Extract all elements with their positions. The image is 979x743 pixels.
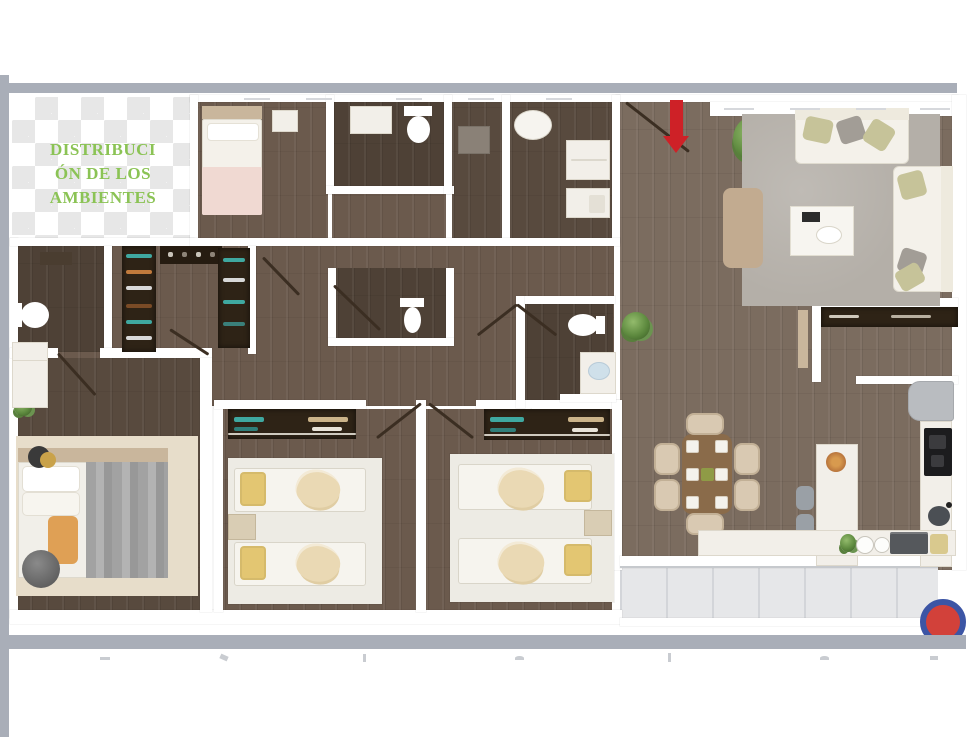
wall (10, 238, 194, 246)
wall (328, 338, 454, 346)
dining-chair (734, 443, 760, 475)
closet-shoe-shelf (160, 246, 222, 264)
kitchen-sink-round (928, 506, 950, 526)
entrance-arrow-shaft (670, 100, 683, 136)
bedroom1-closet (228, 409, 356, 439)
yellow-pillow (564, 544, 592, 576)
wall (525, 296, 615, 304)
faint-mark (546, 98, 572, 100)
nightstand (272, 110, 298, 132)
entrance-arrow-head (663, 136, 689, 153)
dining-chair (734, 479, 760, 511)
wall (952, 95, 966, 570)
nightstand (228, 514, 256, 540)
yellow-pillow (564, 470, 592, 502)
toilet-bowl (21, 302, 49, 328)
sink-basin (588, 362, 610, 380)
laundry-appliance (566, 140, 610, 180)
faint-mark (930, 656, 938, 660)
pink-blanket (202, 167, 262, 215)
faint-mark (668, 653, 671, 662)
bar-stool (796, 486, 814, 510)
island-plant (826, 452, 846, 472)
dining-chair (654, 443, 680, 475)
faint-mark (100, 657, 110, 660)
wall (326, 95, 334, 194)
wall (502, 95, 510, 243)
top-divider-bar (0, 83, 957, 93)
closet-rack-right (218, 248, 250, 348)
laundry-cabinet (566, 188, 610, 218)
coffee-table-decor (802, 212, 820, 222)
toilet-tank (404, 106, 432, 116)
faint-mark (724, 108, 754, 110)
screenshot-root: DISTRIBUCI ÓN DE LOS AMBIENTES (0, 0, 979, 743)
sink-basin (874, 537, 890, 553)
wall (190, 238, 620, 246)
table-lamp-gold (40, 452, 56, 468)
hall-wardrobe (821, 307, 958, 327)
shower-tray (458, 126, 490, 154)
closet-rack-left (122, 246, 156, 352)
balcony-door-track (620, 566, 938, 568)
title-line-2: ÓN DE LOS (28, 162, 178, 186)
floor-balcony (620, 568, 938, 618)
wall (560, 394, 616, 402)
faint-mark (468, 98, 494, 100)
bottom-divider-bar (0, 635, 966, 649)
dining-chair (686, 413, 724, 435)
fridge (908, 381, 954, 421)
faint-mark (219, 654, 228, 662)
wall-art (40, 252, 72, 265)
washing-machine (514, 110, 552, 140)
faint-mark (920, 108, 950, 110)
toilet-tank (400, 298, 424, 307)
faint-mark (820, 656, 829, 660)
wall (446, 268, 454, 346)
wall (214, 400, 223, 612)
bed-pillow (22, 466, 80, 492)
hall-mirror (798, 310, 808, 368)
stove (890, 532, 928, 554)
faint-mark (363, 654, 366, 662)
kitchen-plant (840, 534, 856, 552)
tv-bench (723, 188, 763, 268)
wall (416, 400, 426, 612)
sofa-right-back (941, 166, 953, 292)
toilet-bowl (568, 314, 598, 336)
wall (10, 610, 622, 624)
floor-corridor-top (332, 188, 446, 240)
wall (326, 186, 454, 194)
master-desk (12, 360, 48, 408)
faint-mark (515, 656, 524, 660)
title-line-1: DISTRIBUCI (28, 138, 178, 162)
coffee-table-bowl (816, 226, 842, 244)
dining-chair (654, 479, 680, 511)
wall (104, 246, 112, 354)
dining-table (682, 434, 732, 514)
faint-mark (244, 98, 270, 100)
wall (200, 358, 212, 612)
sink-basin (856, 536, 874, 554)
floor-shower-room (452, 100, 504, 240)
faucet (946, 502, 952, 508)
wall (100, 348, 212, 358)
wall (190, 95, 198, 245)
wall (214, 400, 366, 409)
toilet-bowl (404, 307, 421, 333)
wall (812, 298, 821, 382)
wall (620, 618, 940, 626)
wall (328, 268, 336, 346)
faint-mark (396, 98, 422, 100)
bed-headboard (202, 106, 262, 119)
wall (444, 95, 452, 194)
toilet-bowl (407, 116, 430, 143)
yellow-pillow (240, 472, 266, 506)
bathroom-vanity (350, 106, 392, 134)
wall (516, 296, 525, 408)
faint-mark (856, 108, 886, 110)
pouf (22, 550, 60, 588)
wall (616, 95, 958, 102)
faint-mark (306, 98, 332, 100)
page-title: DISTRIBUCI ÓN DE LOS AMBIENTES (28, 134, 178, 214)
bed-pillow (22, 492, 80, 516)
cooktop (924, 428, 952, 476)
bedroom2-closet (484, 409, 610, 440)
yellow-pillow (240, 546, 266, 580)
nightstand (584, 510, 612, 536)
toilet-tank (596, 316, 605, 334)
plant-hall (622, 312, 650, 340)
faint-mark (790, 108, 820, 110)
title-line-3: AMBIENTES (28, 186, 178, 210)
kitchen-item (930, 534, 948, 554)
bed-pillow (207, 123, 259, 141)
gray-blanket (86, 462, 168, 578)
wall (612, 95, 620, 243)
